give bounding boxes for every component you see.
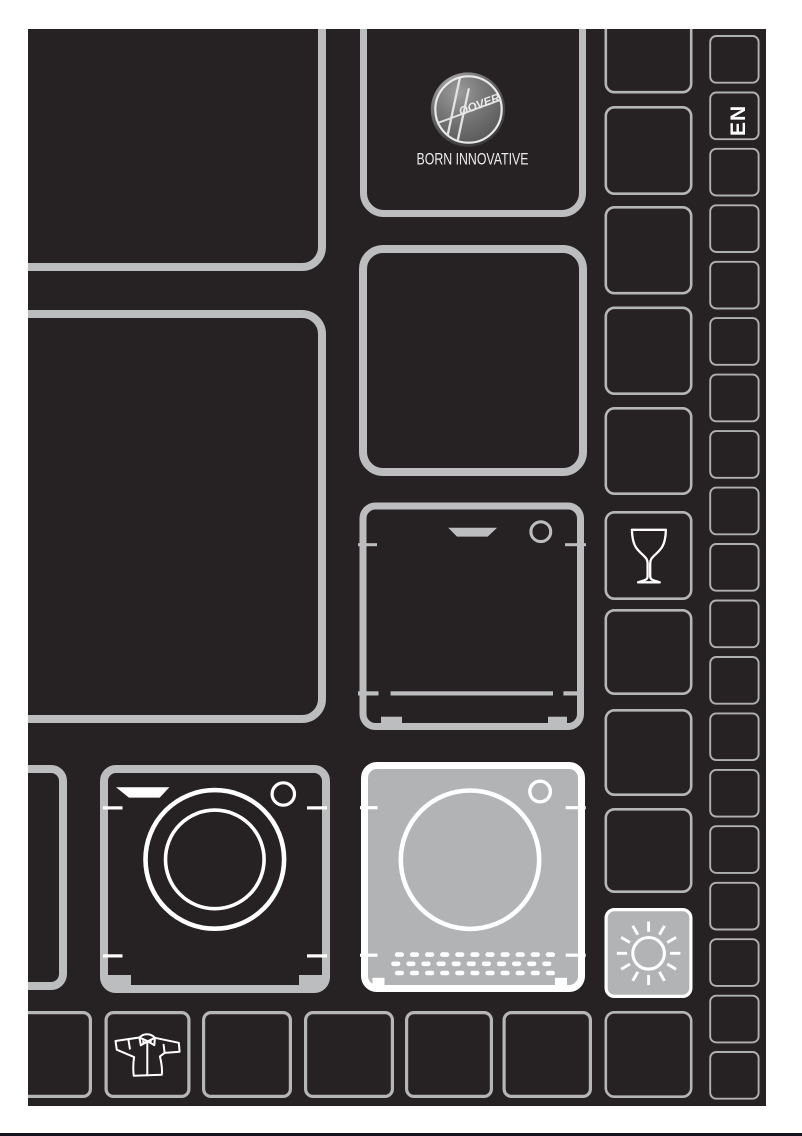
svg-text:BORN INNOVATIVE: BORN INNOVATIVE [417, 150, 529, 169]
svg-text:EN: EN [727, 105, 750, 136]
